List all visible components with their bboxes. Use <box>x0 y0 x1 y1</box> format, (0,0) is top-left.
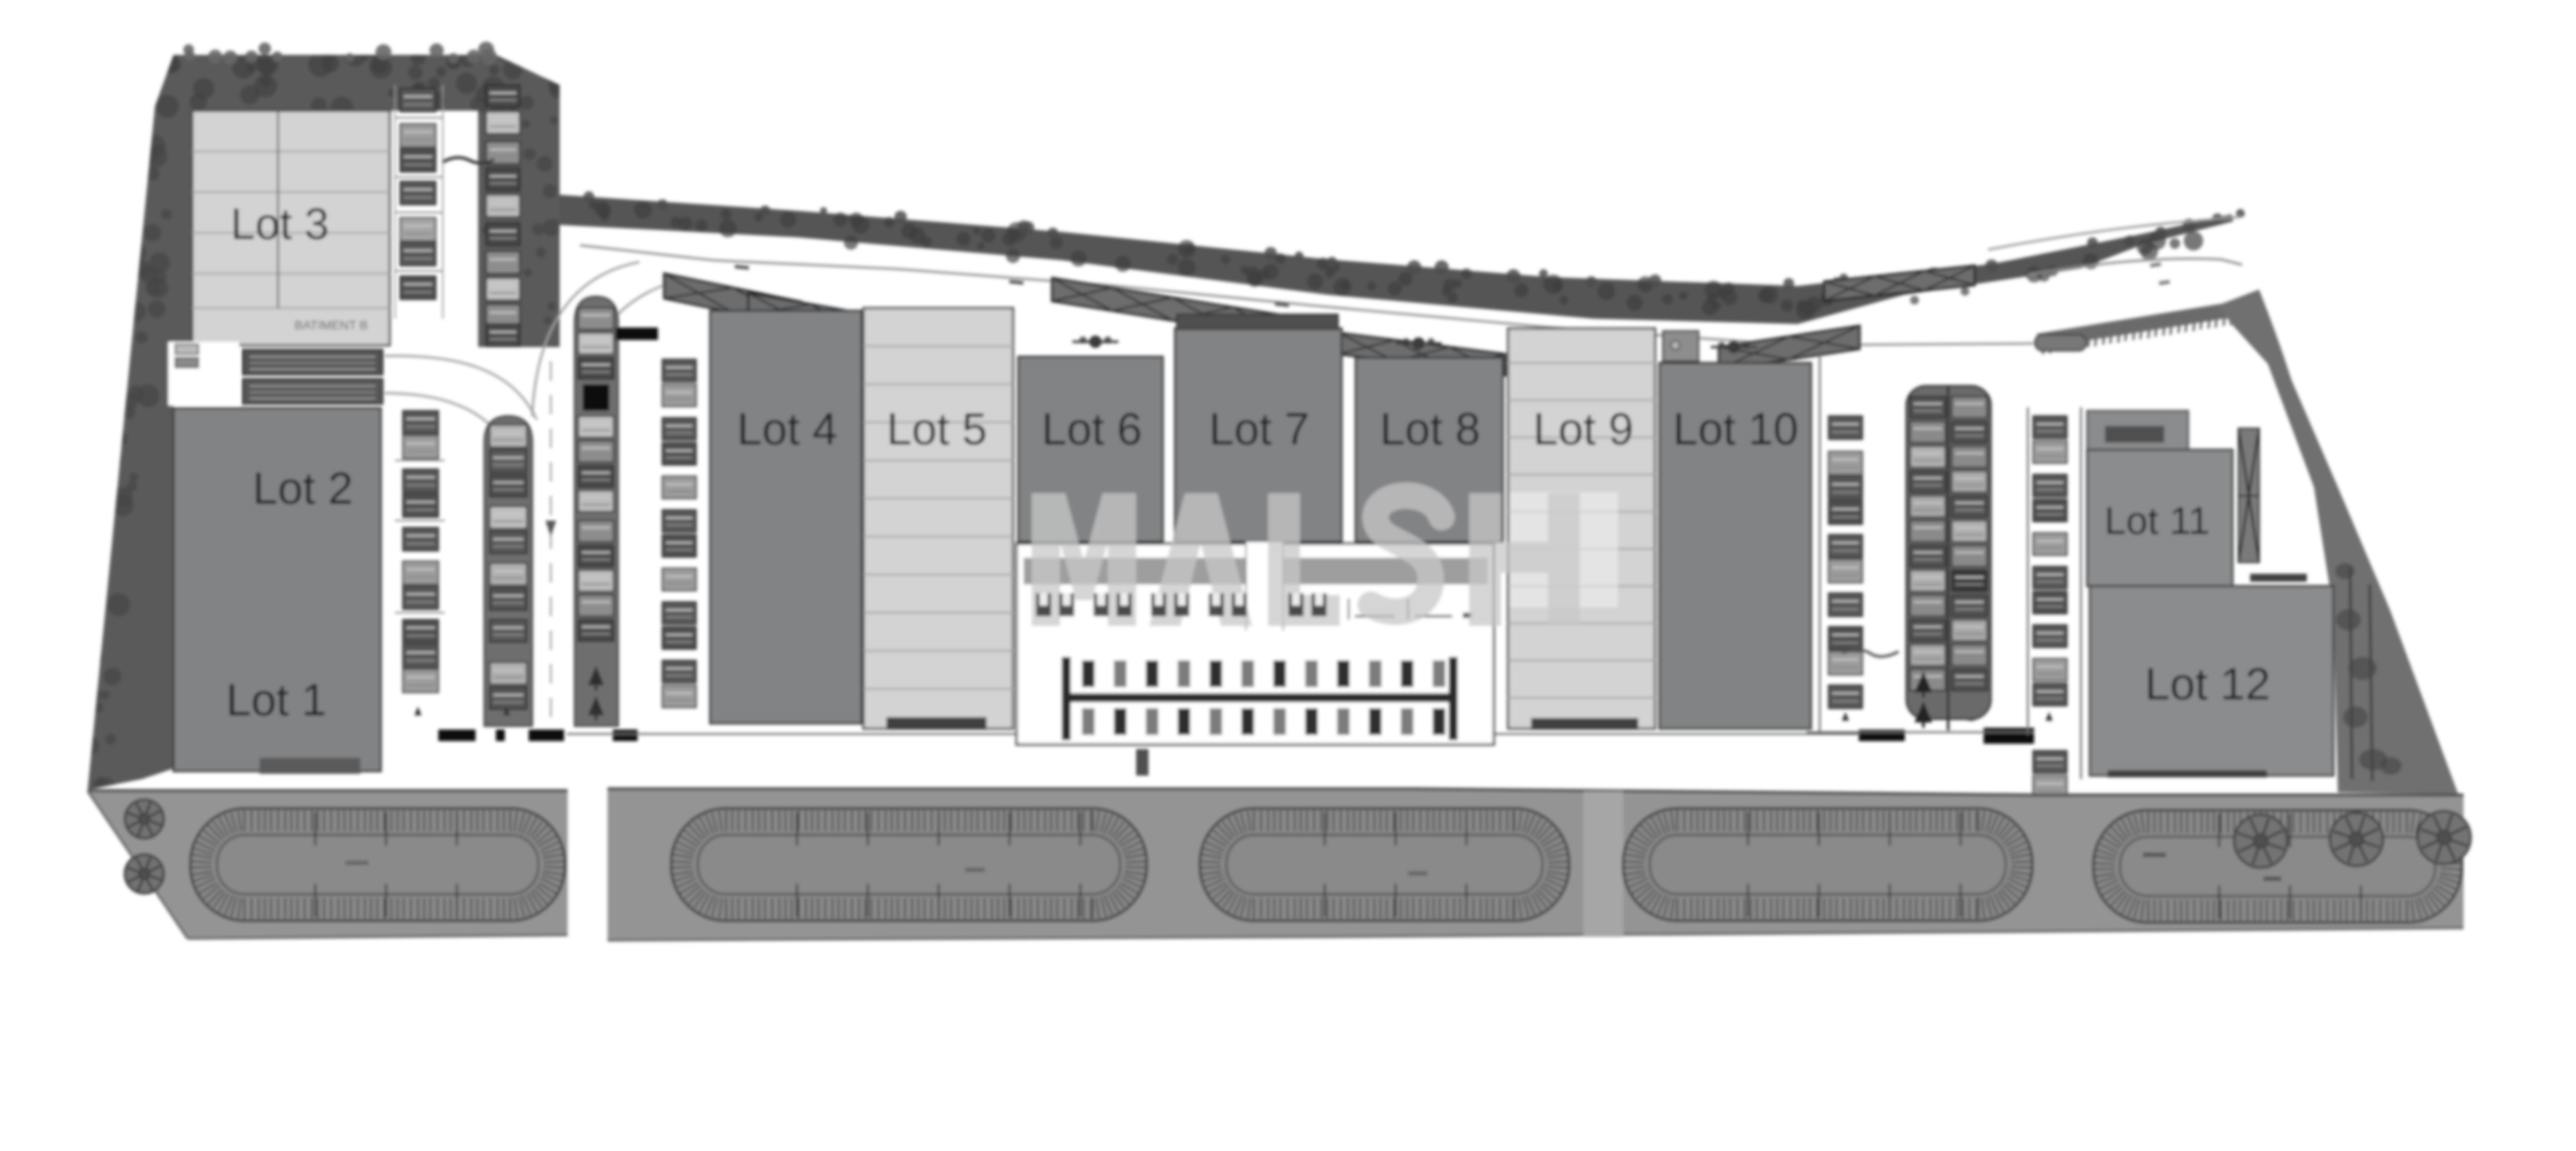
svg-text:Lot 11: Lot 11 <box>2104 499 2209 543</box>
svg-text:Lot 7: Lot 7 <box>1209 404 1309 454</box>
svg-text:Lot 12: Lot 12 <box>2145 659 2270 709</box>
svg-text:Lot 1: Lot 1 <box>226 675 326 725</box>
svg-text:Lot 4: Lot 4 <box>737 404 837 454</box>
svg-text:Lot 9: Lot 9 <box>1533 404 1633 454</box>
svg-text:Lot 2: Lot 2 <box>252 463 352 514</box>
svg-text:Lot 5: Lot 5 <box>886 404 986 454</box>
svg-text:BATIMENT B: BATIMENT B <box>295 318 368 332</box>
svg-text:Lot 6: Lot 6 <box>1041 404 1141 454</box>
svg-text:Lot 10: Lot 10 <box>1673 404 1799 454</box>
svg-text:Lot 3: Lot 3 <box>230 199 329 249</box>
svg-text:Lot 8: Lot 8 <box>1380 404 1480 454</box>
